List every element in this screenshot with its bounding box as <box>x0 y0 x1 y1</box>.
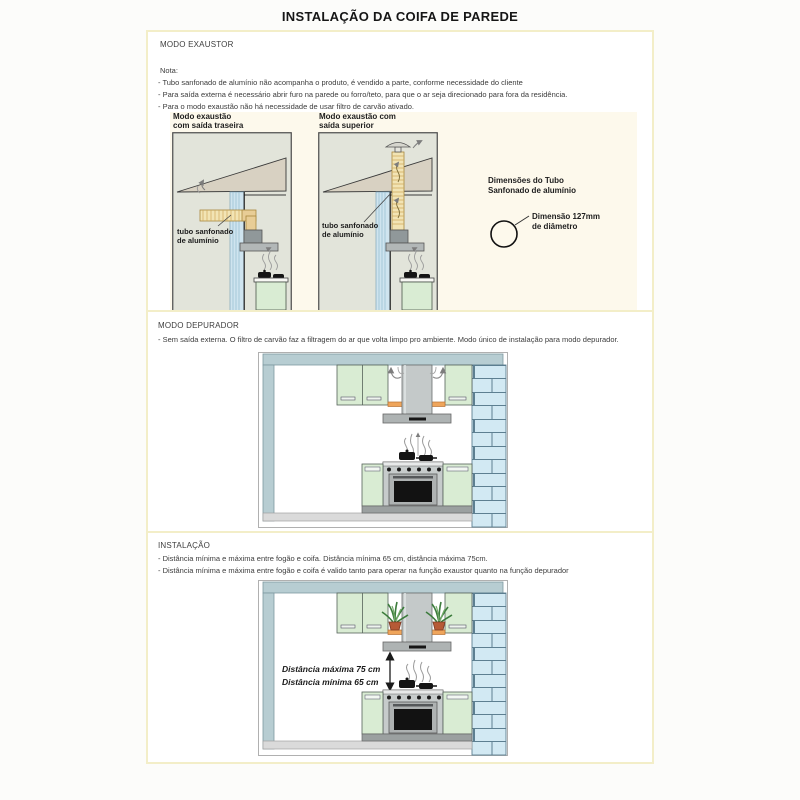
exaustor-note-2: - Para saída externa é necessário abrir … <box>158 90 567 99</box>
diagram-top-title-line1: Modo exaustão com <box>319 112 438 121</box>
stove <box>400 278 434 310</box>
exaustor-heading: MODO EXAUSTOR <box>160 40 234 49</box>
brick-wall <box>472 593 506 755</box>
wall-band <box>376 192 390 311</box>
kitchen-diagram-distances: Distância máxima 75 cm Distância mínima … <box>258 580 508 756</box>
stove <box>254 278 288 310</box>
tube-label-line1: tubo sanfonado <box>177 227 234 236</box>
section-instalacao: INSTALAÇÃO - Distância mínima e máxima e… <box>146 531 654 764</box>
diagram-rear-exit: Modo exaustão com saída traseira <box>172 112 292 312</box>
nota-label: Nota: <box>160 66 178 75</box>
left-wall <box>263 365 274 521</box>
tube-label-line2: de alumínio <box>177 236 219 245</box>
tube-dimensions-heading-line2: Sanfonado de alumínio <box>488 186 636 196</box>
floor <box>263 741 472 749</box>
diagram-top-title-line2: saída superior <box>319 121 438 130</box>
page-title: INSTALAÇÃO DA COIFA DE PAREDE <box>0 9 800 24</box>
section-modo-depurador: MODO DEPURADOR - Sem saída externa. O fi… <box>146 310 654 533</box>
diagram-top-title: Modo exaustão com saída superior <box>319 112 438 130</box>
range <box>383 462 443 506</box>
brick-wall <box>472 365 506 527</box>
instalacao-heading: INSTALAÇÃO <box>158 541 210 550</box>
exaustor-note-3: - Para o modo exaustão não há necessidad… <box>158 102 414 111</box>
diameter-label-line1: Dimensão 127mm <box>532 212 600 221</box>
tube-dimensions-heading: Dimensões do Tubo Sanfonado de alumínio <box>488 176 636 196</box>
depurador-note: - Sem saída externa. O filtro de carvão … <box>158 335 619 344</box>
diagram-top-exit: Modo exaustão com saída superior <box>318 112 438 312</box>
diagram-rear-svg: tubo sanfonado de alumínio <box>172 132 292 312</box>
distance-max-label: Distância máxima 75 cm <box>282 664 381 674</box>
instalacao-note-1: - Distância mínima e máxima entre fogão … <box>158 554 488 563</box>
diameter-label-line2: de diâmetro <box>532 222 577 231</box>
depurador-heading: MODO DEPURADOR <box>158 321 239 330</box>
exaustor-diagram-panel: Modo exaustão com saída traseira <box>170 112 637 314</box>
tube-label-line2: de alumínio <box>322 230 364 239</box>
left-wall <box>263 593 274 749</box>
instalacao-note-2: - Distância mínima e máxima entre fogão … <box>158 566 569 575</box>
tube-dimensions-heading-line1: Dimensões do Tubo <box>488 176 636 186</box>
exaustor-note-1: - Tubo sanfonado de alumínio não acompan… <box>158 78 523 87</box>
manual-page: INSTALAÇÃO DA COIFA DE PAREDE MODO EXAUS… <box>0 0 800 800</box>
tube-dimensions: Dimensões do Tubo Sanfonado de alumínio … <box>488 176 636 263</box>
distance-min-label: Distância mínima 65 cm <box>282 677 379 687</box>
kitchen-diagram-depurador <box>258 352 508 528</box>
tube-circle <box>491 221 517 247</box>
floor <box>263 513 472 521</box>
diagram-top-svg: tubo sanfonado de alumínio <box>318 132 438 312</box>
diameter-leader-line <box>515 216 529 225</box>
ceiling <box>263 582 503 593</box>
range <box>383 690 443 734</box>
diagram-rear-title: Modo exaustão com saída traseira <box>173 112 292 130</box>
diagram-rear-title-line1: Modo exaustão <box>173 112 292 121</box>
ceiling <box>263 354 503 365</box>
tube-label-line1: tubo sanfonado <box>322 221 379 230</box>
diagram-rear-title-line2: com saída traseira <box>173 121 292 130</box>
tube-diameter-figure: Dimensão 127mm de diâmetro <box>488 202 636 258</box>
corrugated-tube-vertical <box>392 152 404 230</box>
section-modo-exaustor: MODO EXAUSTOR Nota: - Tubo sanfonado de … <box>146 30 654 312</box>
